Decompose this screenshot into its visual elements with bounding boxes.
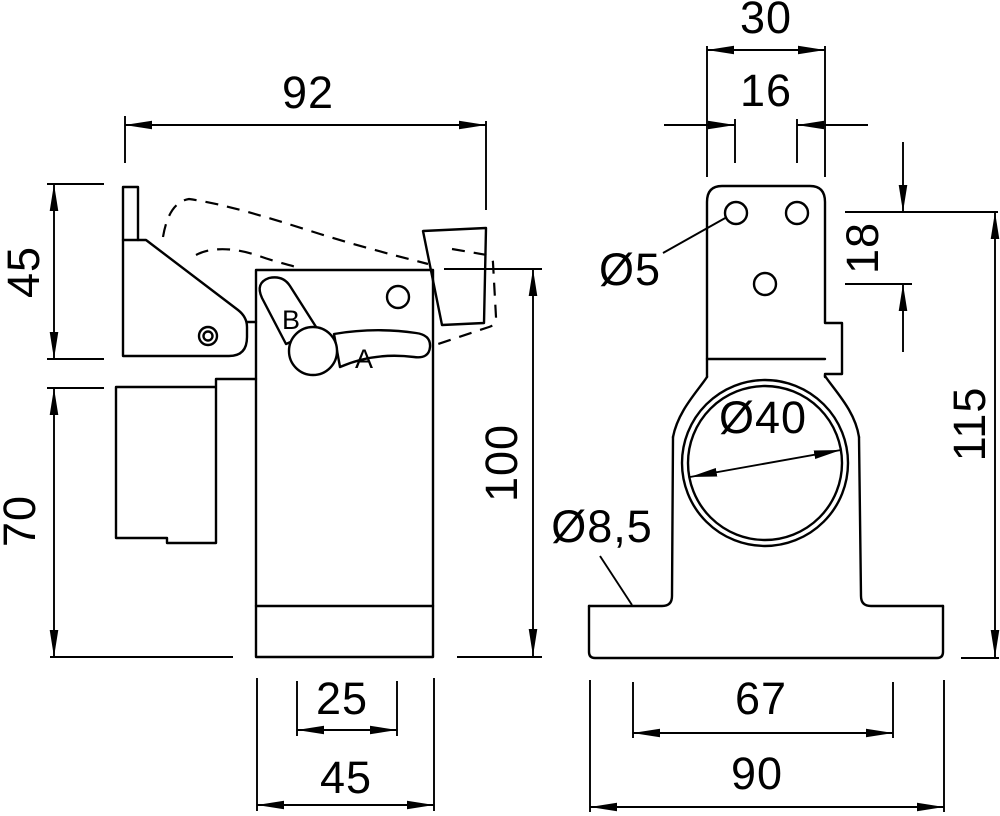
dim-45-upper: 45 bbox=[0, 184, 104, 359]
dim-16: 16 bbox=[664, 65, 868, 163]
lever-open-arm-upper-dashed bbox=[163, 199, 428, 264]
dim-70-label: 70 bbox=[0, 495, 45, 547]
base-plate bbox=[589, 606, 943, 658]
plate-screw-inner bbox=[204, 332, 213, 341]
dim-45-bottom-label: 45 bbox=[320, 752, 372, 803]
side-boss bbox=[116, 379, 256, 543]
dim-18-label: 18 bbox=[837, 222, 888, 274]
dim-90-label: 90 bbox=[731, 748, 783, 799]
bracket-hole-left bbox=[725, 202, 747, 224]
pivot-hole bbox=[387, 286, 409, 308]
dim-45-upper-label: 45 bbox=[0, 246, 49, 298]
dim-dia8-5: Ø8,5 bbox=[551, 501, 653, 605]
dim-67: 67 bbox=[633, 673, 893, 738]
dim-92: 92 bbox=[125, 67, 486, 210]
dim-25: 25 bbox=[297, 673, 397, 736]
dim-dia40-label: Ø40 bbox=[719, 392, 807, 443]
dim-115: 115 bbox=[944, 212, 999, 658]
front-view-dimensions: 30 16 Ø5 18 Ø40 Ø8 bbox=[551, 0, 999, 812]
dim-30-label: 30 bbox=[740, 0, 792, 43]
side-view: B A bbox=[116, 187, 496, 657]
body-side-right bbox=[859, 437, 943, 606]
dim-25-label: 25 bbox=[316, 673, 368, 724]
lever-position-b-label: B bbox=[282, 305, 300, 335]
dim-dia5-label: Ø5 bbox=[599, 244, 661, 295]
plate-screw-outer bbox=[199, 327, 217, 345]
lever-horn bbox=[334, 330, 430, 367]
dim-dia8-5-label: Ø8,5 bbox=[551, 501, 653, 552]
bracket-hole-middle bbox=[754, 273, 776, 295]
mounting-tab bbox=[123, 187, 138, 240]
dim-100: 100 bbox=[444, 269, 542, 657]
technical-drawing-page: B A 92 45 70 100 bbox=[0, 0, 1000, 816]
bracket-hole-right bbox=[786, 202, 808, 224]
dim-16-label: 16 bbox=[740, 65, 792, 116]
lever-open-arm-lower-dashed bbox=[196, 249, 299, 268]
dim-18: 18 bbox=[837, 142, 998, 352]
side-view-dimensions: 92 45 70 100 25 bbox=[0, 67, 542, 811]
lever-open-knob-dashed bbox=[438, 249, 496, 344]
dim-100-label: 100 bbox=[476, 424, 527, 502]
dim-115-label: 115 bbox=[944, 387, 995, 462]
technical-drawing: B A 92 45 70 100 bbox=[0, 0, 1000, 816]
lever-position-a-label: A bbox=[355, 344, 373, 374]
dim-92-label: 92 bbox=[282, 67, 334, 118]
mounting-plate bbox=[123, 240, 247, 356]
dim-67-label: 67 bbox=[735, 673, 787, 724]
